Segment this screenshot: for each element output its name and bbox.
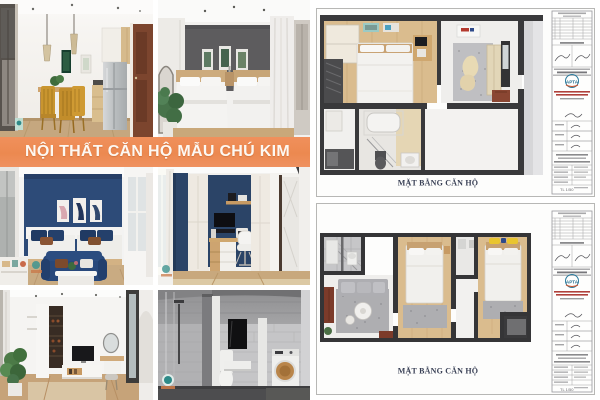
svg-text:TL 1/50: TL 1/50 [560, 187, 574, 192]
svg-text:MẶT BẰNG CĂN HỘ: MẶT BẰNG CĂN HỘ [398, 178, 478, 188]
svg-text:APTA: APTA [566, 280, 579, 285]
svg-text:APTA: APTA [566, 80, 579, 85]
svg-text:MẶT BẰNG CĂN HỘ: MẶT BẰNG CĂN HỘ [398, 366, 478, 376]
svg-text:TL 1/50: TL 1/50 [560, 387, 574, 392]
